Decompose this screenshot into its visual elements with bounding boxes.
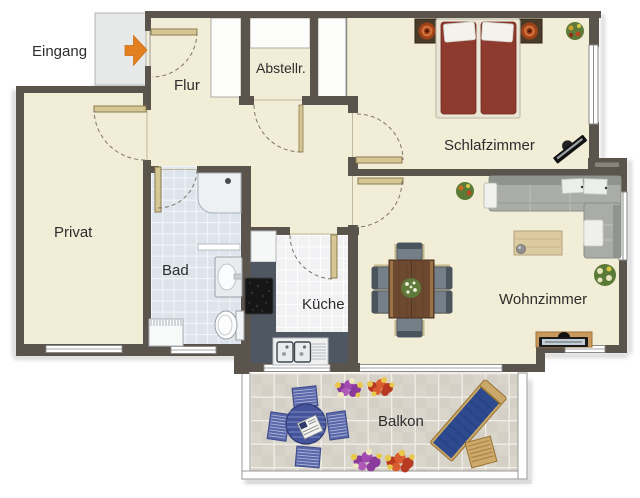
svg-text:Flur: Flur (174, 77, 200, 94)
svg-text:Schlafzimmer: Schlafzimmer (444, 137, 535, 154)
svg-text:Wohnzimmer: Wohnzimmer (499, 291, 587, 308)
svg-text:Abstellr.: Abstellr. (256, 60, 306, 76)
svg-text:Eingang: Eingang (32, 43, 87, 60)
svg-text:Küche: Küche (302, 296, 345, 313)
svg-text:Bad: Bad (162, 262, 189, 279)
svg-text:Balkon: Balkon (378, 413, 424, 430)
svg-text:Privat: Privat (54, 224, 93, 241)
